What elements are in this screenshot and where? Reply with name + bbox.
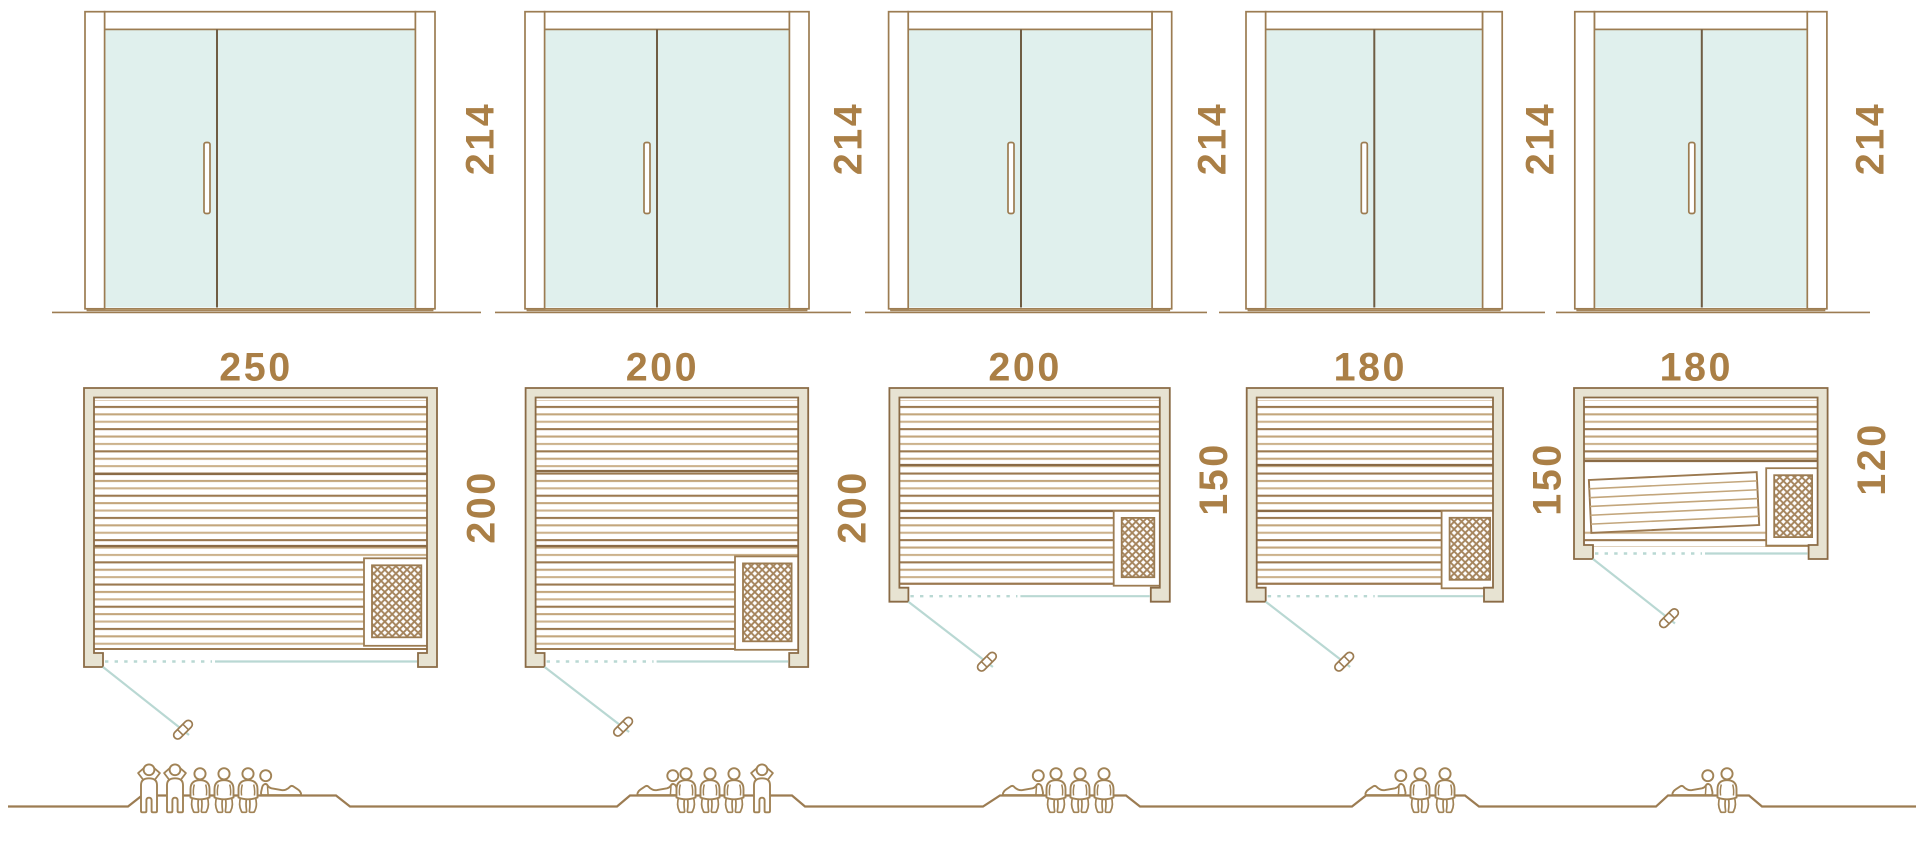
svg-text:214: 214 [458,102,502,175]
svg-text:120: 120 [1850,422,1894,495]
svg-text:214: 214 [1190,102,1234,175]
svg-text:250: 250 [219,346,292,390]
svg-text:200: 200 [459,470,503,543]
svg-text:214: 214 [1848,102,1892,175]
svg-text:150: 150 [1525,442,1569,515]
svg-text:180: 180 [1660,346,1733,390]
svg-text:214: 214 [1518,102,1562,175]
svg-text:214: 214 [826,102,870,175]
svg-text:200: 200 [831,470,875,543]
svg-text:180: 180 [1334,346,1407,390]
svg-text:200: 200 [626,346,699,390]
svg-text:200: 200 [988,346,1061,390]
svg-text:150: 150 [1192,442,1236,515]
